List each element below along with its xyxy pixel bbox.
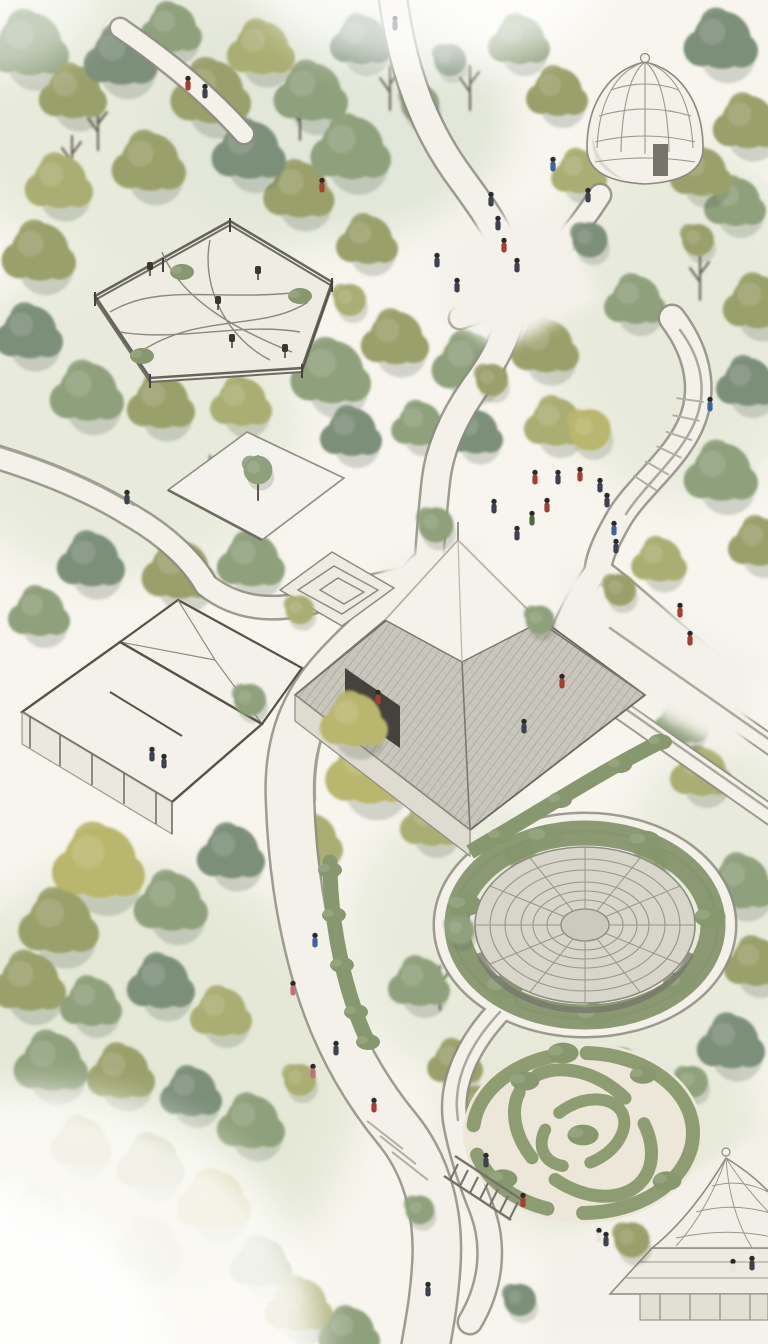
visitor — [514, 526, 519, 541]
visitor — [677, 603, 682, 618]
visitor — [434, 253, 439, 268]
visitor — [491, 499, 496, 514]
park-illustration — [0, 0, 768, 1344]
watercolor-park-map — [0, 0, 768, 1344]
visitor — [319, 178, 324, 193]
visitor — [555, 470, 560, 485]
visitor — [550, 157, 555, 172]
visitor — [577, 467, 582, 482]
visitor — [596, 1228, 601, 1243]
visitor — [290, 981, 295, 996]
tent-finial — [722, 1148, 730, 1156]
visitor — [149, 747, 154, 762]
visitor — [185, 76, 190, 91]
visitor — [749, 1256, 754, 1271]
tent-wall — [640, 1294, 768, 1320]
visitor — [597, 478, 602, 493]
visitor — [425, 1282, 430, 1297]
visitor — [521, 719, 526, 734]
visitor — [161, 754, 166, 769]
visitor — [454, 278, 459, 293]
visitor — [611, 521, 616, 536]
visitor — [495, 216, 500, 231]
rotunda — [448, 826, 725, 1027]
visitor — [687, 631, 692, 646]
visitor — [371, 1098, 376, 1113]
visitor — [310, 1064, 315, 1079]
visitor — [544, 498, 549, 513]
dome-finial — [641, 54, 650, 63]
visitor — [730, 1259, 735, 1274]
visitor — [604, 493, 609, 508]
visitor — [514, 258, 519, 273]
hedge-maze — [463, 1043, 703, 1223]
visitor — [375, 690, 380, 705]
visitor — [532, 470, 537, 485]
visitor — [603, 1232, 608, 1247]
visitor — [501, 238, 506, 253]
visitor — [529, 511, 534, 526]
visitor — [488, 192, 493, 207]
visitor — [520, 1193, 525, 1208]
dome-door — [653, 144, 668, 176]
visitor — [559, 674, 564, 689]
visitor — [202, 84, 207, 99]
visitor — [483, 1153, 488, 1168]
visitor — [312, 933, 317, 948]
visitor — [124, 490, 129, 505]
visitor — [585, 188, 590, 203]
visitor — [707, 397, 712, 412]
visitor — [333, 1041, 338, 1056]
visitor — [613, 539, 618, 554]
